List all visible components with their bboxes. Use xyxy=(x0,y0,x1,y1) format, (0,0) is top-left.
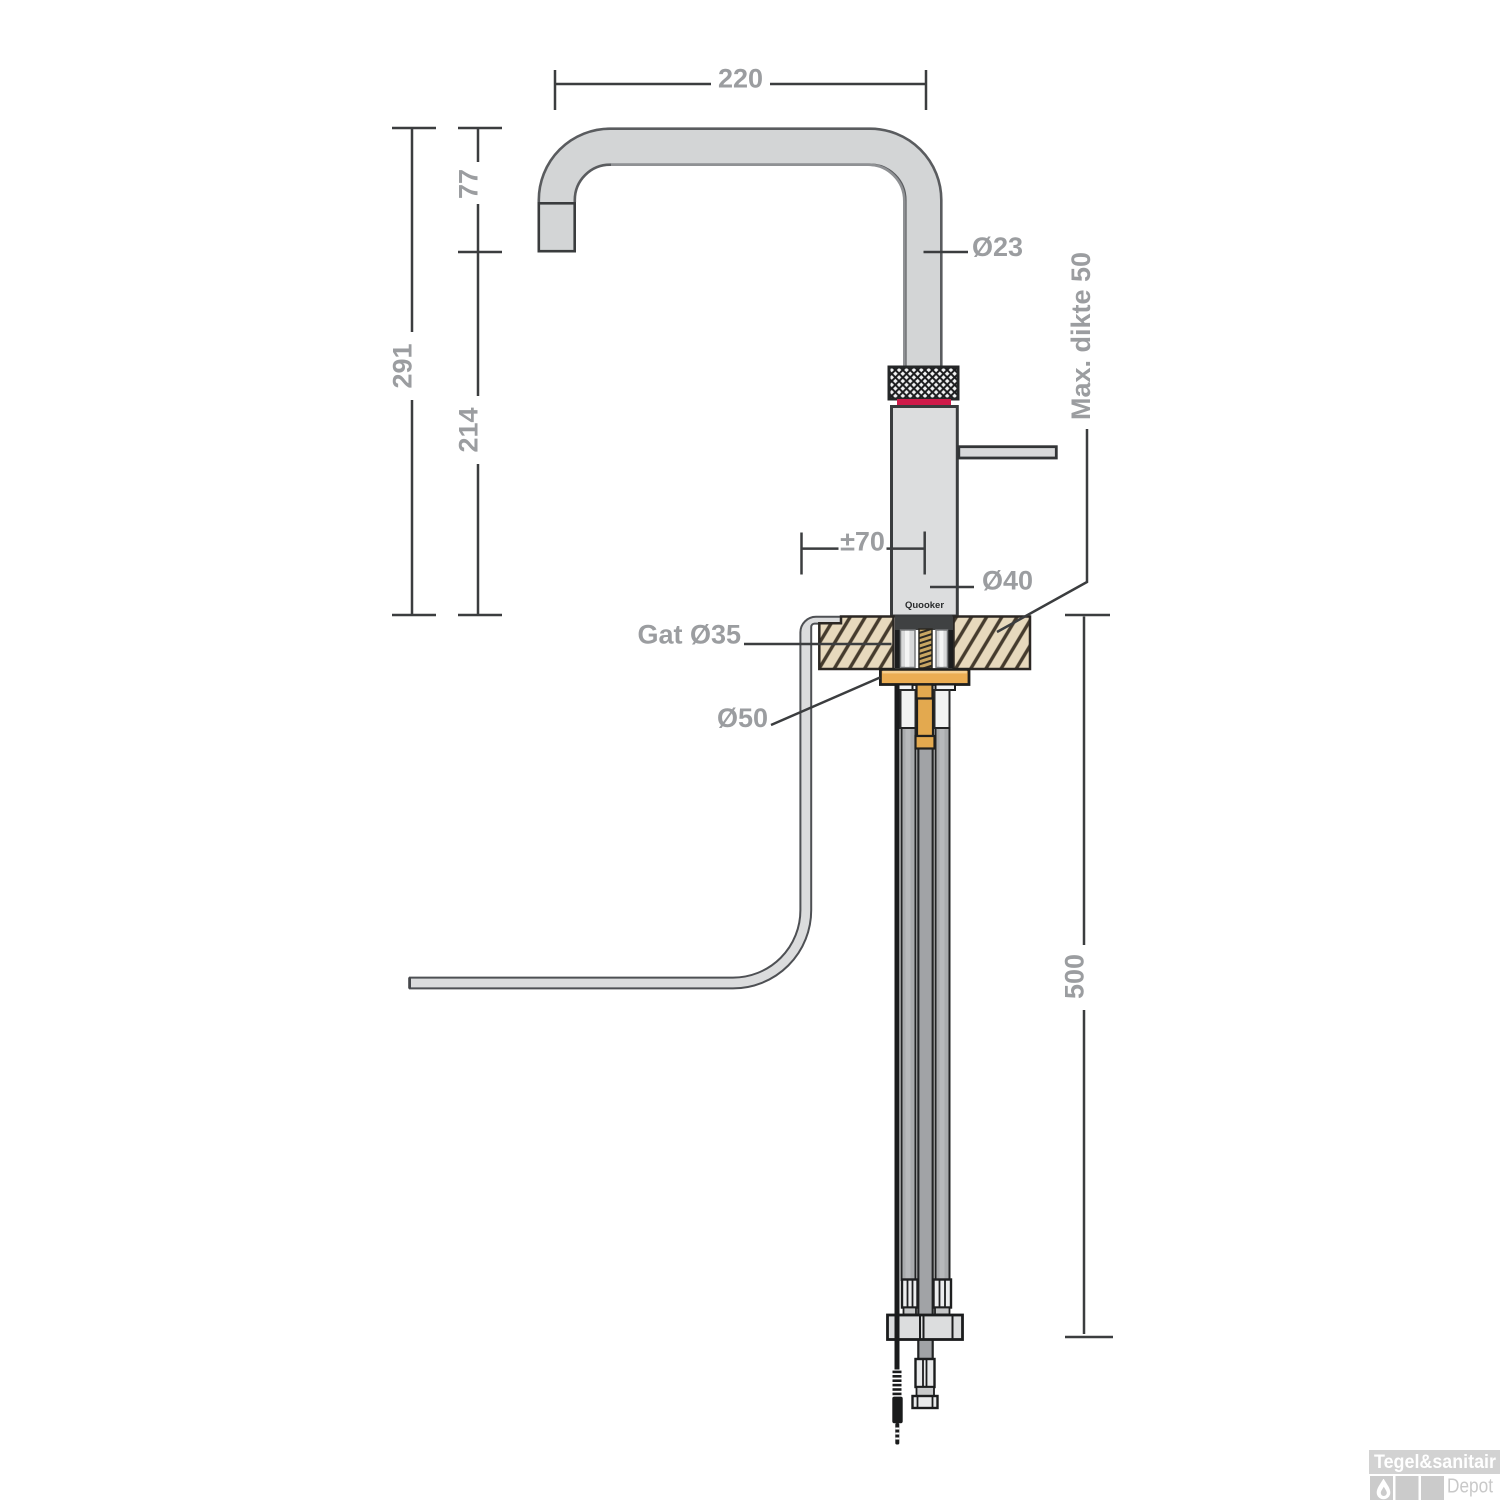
svg-text:220: 220 xyxy=(718,64,763,94)
svg-text:214: 214 xyxy=(454,407,484,452)
svg-text:Depot: Depot xyxy=(1447,1476,1493,1498)
svg-text:Ø23: Ø23 xyxy=(972,232,1023,262)
svg-text:Gat Ø35: Gat Ø35 xyxy=(637,620,741,650)
svg-text:Max. dikte 50: Max. dikte 50 xyxy=(1066,252,1096,420)
svg-text:±70: ±70 xyxy=(840,527,885,557)
svg-text:Quooker: Quooker xyxy=(905,600,944,611)
svg-text:Ø40: Ø40 xyxy=(982,566,1033,596)
svg-text:500: 500 xyxy=(1060,954,1090,999)
svg-text:77: 77 xyxy=(454,169,484,199)
svg-text:291: 291 xyxy=(388,343,418,388)
svg-text:Tegel&sanitair: Tegel&sanitair xyxy=(1374,1452,1497,1473)
svg-text:Ø50: Ø50 xyxy=(717,703,768,733)
